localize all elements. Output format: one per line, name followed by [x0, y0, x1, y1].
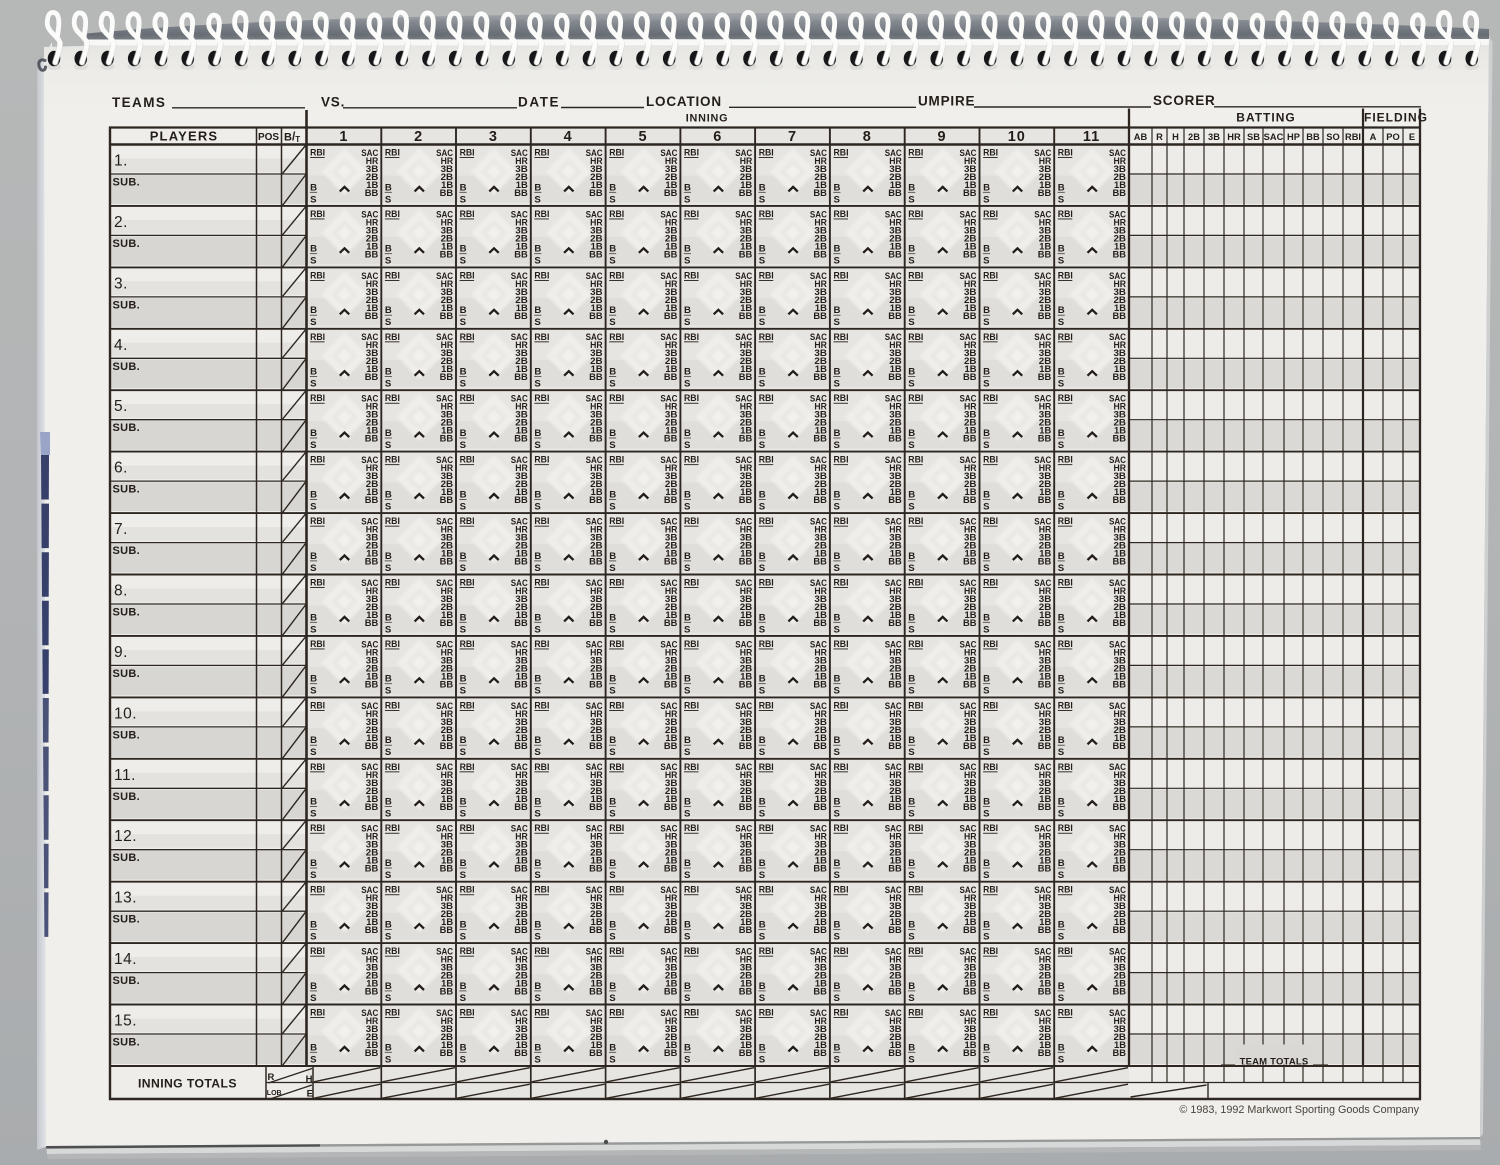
svg-text:HR: HR: [1227, 132, 1241, 142]
svg-text:PLAYERS: PLAYERS: [150, 129, 219, 144]
svg-text:UMPIRE: UMPIRE: [918, 94, 975, 109]
svg-text:SUB.: SUB.: [113, 484, 140, 496]
svg-text:H: H: [1172, 132, 1179, 142]
svg-text:11.: 11.: [114, 767, 136, 784]
svg-text:3.: 3.: [114, 275, 128, 292]
svg-text:6: 6: [713, 129, 722, 145]
svg-text:8: 8: [863, 129, 872, 145]
svg-text:E: E: [1409, 132, 1415, 142]
svg-text:11: 11: [1083, 129, 1100, 145]
svg-text:SUB.: SUB.: [113, 914, 140, 926]
svg-text:H: H: [306, 1074, 313, 1085]
svg-text:SUB.: SUB.: [113, 545, 140, 557]
svg-text:PO: PO: [1386, 132, 1399, 142]
svg-text:9.: 9.: [114, 644, 128, 661]
svg-text:7: 7: [788, 129, 797, 145]
svg-text:BB: BB: [1306, 132, 1320, 142]
svg-text:POS: POS: [258, 132, 279, 143]
svg-text:AB: AB: [1134, 132, 1148, 142]
svg-text:14.: 14.: [114, 951, 137, 968]
svg-text:6.: 6.: [114, 460, 128, 477]
svg-text:E: E: [307, 1089, 313, 1100]
svg-text:9: 9: [938, 129, 947, 145]
svg-text:SUB.: SUB.: [113, 299, 140, 311]
svg-text:5.: 5.: [114, 398, 128, 415]
svg-text:SUB.: SUB.: [113, 975, 140, 987]
svg-text:10: 10: [1008, 129, 1026, 145]
svg-text:DATE: DATE: [518, 95, 560, 110]
svg-text:2.: 2.: [114, 214, 128, 231]
svg-text:TEAMS: TEAMS: [112, 95, 166, 110]
svg-text:8.: 8.: [114, 583, 128, 600]
svg-text:2B: 2B: [1188, 132, 1200, 142]
svg-text:SUB.: SUB.: [113, 791, 140, 803]
svg-text:FIELDING: FIELDING: [1364, 111, 1428, 125]
svg-text:SUB.: SUB.: [113, 422, 140, 434]
svg-text:1: 1: [339, 129, 348, 145]
svg-text:SUB.: SUB.: [113, 238, 140, 250]
svg-text:TEAM TOTALS: TEAM TOTALS: [1240, 1057, 1309, 1068]
svg-text:SUB.: SUB.: [113, 852, 140, 864]
svg-text:SAC: SAC: [1264, 132, 1284, 142]
svg-text:SUB.: SUB.: [113, 361, 140, 373]
svg-text:HP: HP: [1287, 132, 1300, 142]
svg-text:SO: SO: [1326, 132, 1339, 142]
svg-text:13.: 13.: [114, 890, 137, 907]
svg-text:15.: 15.: [114, 1013, 137, 1030]
svg-text:3: 3: [489, 129, 498, 145]
svg-text:SB: SB: [1247, 132, 1260, 142]
svg-text:SUB.: SUB.: [113, 607, 140, 619]
svg-text:4.: 4.: [114, 337, 128, 354]
svg-text:SUB.: SUB.: [113, 1037, 140, 1049]
svg-text:INNING TOTALS: INNING TOTALS: [138, 1077, 237, 1091]
svg-text:SUB.: SUB.: [113, 177, 140, 189]
svg-text:10.: 10.: [114, 705, 137, 722]
svg-text:A: A: [1370, 132, 1377, 142]
svg-text:SUB.: SUB.: [113, 668, 140, 680]
svg-text:© 1983, 1992 Markwort Sporting: © 1983, 1992 Markwort Sporting Goods Com…: [1179, 1104, 1419, 1116]
svg-text:VS.: VS.: [321, 95, 345, 110]
svg-text:7.: 7.: [114, 521, 128, 538]
svg-text:1.: 1.: [114, 153, 128, 170]
svg-text:SCORER: SCORER: [1153, 93, 1216, 108]
svg-text:12.: 12.: [114, 828, 137, 845]
svg-text:5: 5: [638, 129, 647, 145]
svg-text:SUB.: SUB.: [113, 729, 140, 741]
svg-text:INNING: INNING: [686, 113, 729, 125]
svg-text:R: R: [1156, 132, 1163, 142]
svg-text:4: 4: [564, 129, 573, 145]
svg-text:3B: 3B: [1208, 132, 1220, 142]
svg-text:LOCATION: LOCATION: [646, 94, 722, 109]
svg-text:BATTING: BATTING: [1236, 111, 1295, 125]
svg-text:2: 2: [414, 129, 423, 145]
svg-text:RBI: RBI: [1345, 132, 1361, 142]
